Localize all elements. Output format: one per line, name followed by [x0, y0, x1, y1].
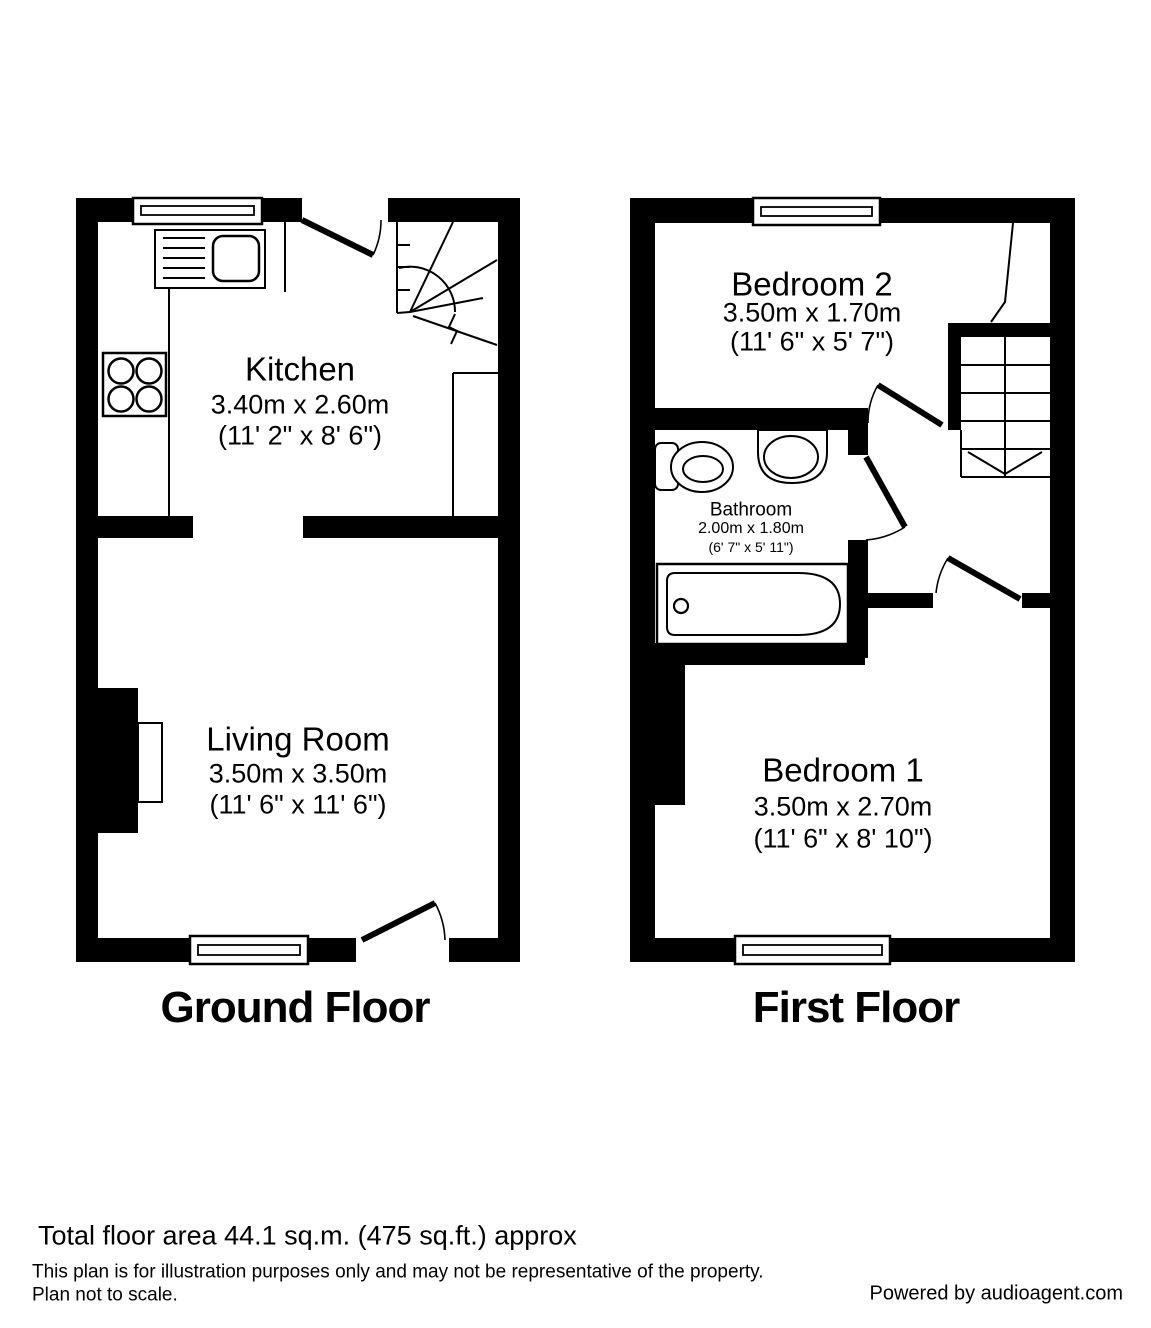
- ground-floor-title: Ground Floor: [160, 986, 429, 1030]
- hob-icon: [103, 353, 166, 416]
- kitchen-dimensions-imperial: (11' 2" x 8' 6"): [218, 423, 382, 450]
- living-room-window-icon: [190, 936, 308, 964]
- ground-floor-plan: [76, 198, 520, 964]
- kitchen-door-icon: [302, 220, 381, 255]
- basin-icon: [758, 430, 827, 483]
- bedroom2-dimensions-imperial: (11' 6" x 5' 7"): [730, 329, 894, 356]
- kitchen-dimensions-metric: 3.40m x 2.60m: [211, 392, 390, 419]
- total-floor-area: Total floor area 44.1 sq.m. (475 sq.ft.)…: [38, 1223, 577, 1250]
- bathroom-dimensions-imperial: (6' 7" x 5' 11"): [708, 540, 793, 554]
- first-floor-title: First Floor: [753, 986, 960, 1030]
- fireplace-recess: [138, 723, 162, 802]
- bedroom2-dimensions-metric: 3.50m x 1.70m: [723, 300, 902, 327]
- first-staircase-icon: [961, 223, 1050, 477]
- powered-by-credit: Powered by audioagent.com: [870, 1283, 1124, 1306]
- bathroom-label: Bathroom: [710, 501, 792, 520]
- floorplan-page: Kitchen 3.40m x 2.60m (11' 2" x 8' 6") L…: [0, 0, 1151, 1328]
- bathroom-door-icon: [866, 457, 905, 540]
- kitchen-label: Kitchen: [245, 353, 355, 386]
- bedroom1-dimensions-imperial: (11' 6" x 8' 10"): [753, 826, 932, 853]
- bedroom2-window-icon: [753, 198, 880, 225]
- understairs-cupboard: [453, 373, 498, 516]
- stair-handrail-line: [991, 223, 1013, 322]
- bedroom2-label: Bedroom 2: [731, 268, 892, 301]
- ground-staircase-icon: [397, 222, 497, 345]
- disclaimer-line-2: Plan not to scale.: [32, 1286, 178, 1305]
- toilet-icon: [655, 442, 733, 492]
- bathroom-dimensions-metric: 2.00m x 1.80m: [698, 521, 804, 537]
- living-room-door-icon: [362, 903, 445, 940]
- floorplan-drawing: [0, 0, 1151, 1328]
- bedroom1-dimensions-metric: 3.50m x 2.70m: [754, 794, 933, 821]
- kitchen-sink-icon: [155, 230, 265, 288]
- bathtub-icon: [657, 564, 848, 644]
- kitchen-window-icon: [133, 198, 262, 224]
- bedroom2-door-icon: [868, 385, 942, 425]
- living-room-dimensions-metric: 3.50m x 3.50m: [209, 761, 388, 788]
- bedroom1-door-icon: [936, 558, 1020, 599]
- disclaimer-line-1: This plan is for illustration purposes o…: [32, 1263, 764, 1282]
- living-room-dimensions-imperial: (11' 6" x 11' 6"): [209, 792, 386, 819]
- ground-floor-walls: [76, 198, 520, 962]
- bedroom1-window-icon: [735, 936, 890, 964]
- bedroom1-label: Bedroom 1: [762, 754, 923, 787]
- living-room-label: Living Room: [206, 723, 389, 756]
